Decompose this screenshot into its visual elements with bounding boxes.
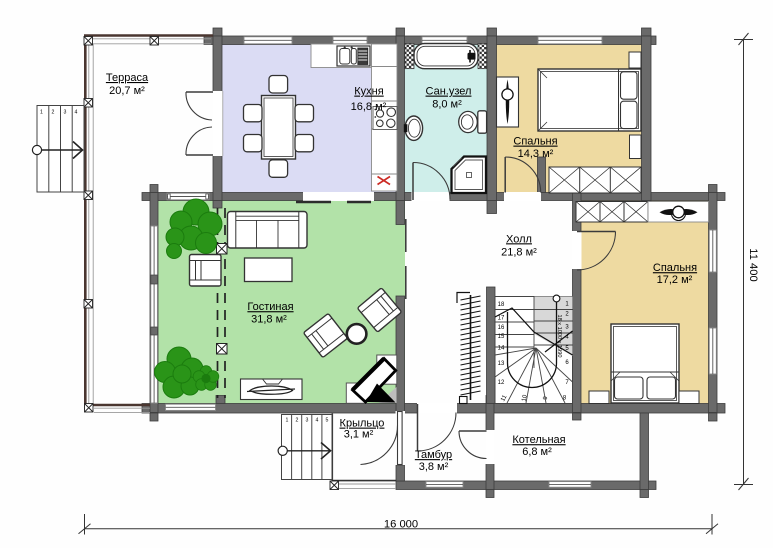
svg-text:18 x 1000 x 1990: 18 x 1000 x 1990 xyxy=(556,315,562,358)
svg-text:20,7 м²: 20,7 м² xyxy=(109,85,145,97)
svg-text:17,2 м²: 17,2 м² xyxy=(657,274,693,286)
svg-text:Спальня: Спальня xyxy=(653,262,697,274)
svg-text:18: 18 xyxy=(498,302,505,308)
svg-text:14,3 м²: 14,3 м² xyxy=(518,148,554,160)
svg-text:13: 13 xyxy=(498,361,505,367)
svg-text:2: 2 xyxy=(296,418,299,424)
svg-text:Тамбур: Тамбур xyxy=(415,449,452,461)
svg-text:Гостиная: Гостиная xyxy=(247,301,293,313)
svg-text:4: 4 xyxy=(75,110,78,116)
svg-text:Холл: Холл xyxy=(506,233,532,245)
svg-text:5: 5 xyxy=(326,418,329,424)
svg-text:1: 1 xyxy=(40,110,43,116)
svg-text:Спальня: Спальня xyxy=(513,136,557,148)
svg-text:3: 3 xyxy=(64,110,67,116)
svg-text:3,8 м²: 3,8 м² xyxy=(419,461,449,473)
svg-text:Кухня: Кухня xyxy=(354,86,383,98)
svg-text:11 400: 11 400 xyxy=(747,248,759,281)
svg-text:4: 4 xyxy=(316,418,319,424)
svg-text:Терраса: Терраса xyxy=(106,72,149,84)
svg-text:Сан.узел: Сан.узел xyxy=(426,86,472,98)
svg-text:2: 2 xyxy=(52,110,55,116)
svg-text:Котельная: Котельная xyxy=(512,434,565,446)
svg-text:21,8 м²: 21,8 м² xyxy=(501,247,537,259)
svg-text:1: 1 xyxy=(286,418,289,424)
svg-text:6,8 м²: 6,8 м² xyxy=(522,446,552,458)
svg-text:3: 3 xyxy=(306,418,309,424)
svg-text:16,8 м²: 16,8 м² xyxy=(351,101,387,113)
svg-text:16: 16 xyxy=(498,325,505,331)
svg-text:8,0 м²: 8,0 м² xyxy=(432,99,462,111)
svg-text:14: 14 xyxy=(498,346,505,352)
svg-text:3,1 м²: 3,1 м² xyxy=(344,429,374,441)
svg-text:17: 17 xyxy=(498,316,505,322)
svg-text:16 000: 16 000 xyxy=(384,519,418,531)
svg-text:12: 12 xyxy=(498,380,505,386)
svg-text:15: 15 xyxy=(498,334,505,340)
svg-text:31,8 м²: 31,8 м² xyxy=(251,313,287,325)
